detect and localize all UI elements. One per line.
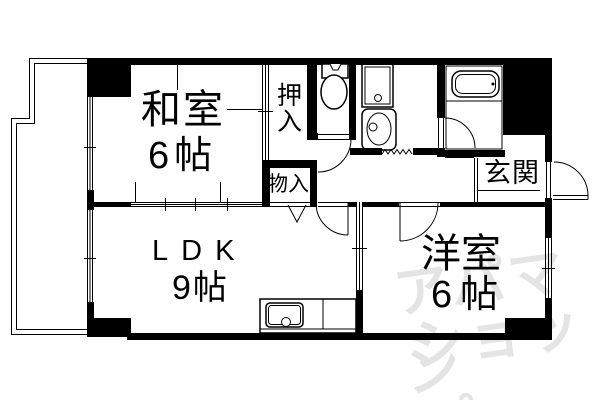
washing-machine-icon bbox=[362, 64, 393, 107]
kitchen-sink-icon bbox=[260, 299, 356, 333]
bathroom-door-arc bbox=[445, 118, 475, 148]
room-label-yoshitsu: 洋室 bbox=[421, 234, 501, 274]
monoire-folding-door-icon bbox=[288, 205, 306, 222]
entrance-door-arc bbox=[553, 162, 588, 200]
room-label-oshiire: 押入 bbox=[277, 83, 303, 135]
room-size-ldk: 9帖 bbox=[172, 271, 229, 305]
tatami-joint-lines bbox=[136, 65, 263, 202]
window-washitsu-west bbox=[84, 97, 96, 190]
floor-plan: アパマン ショップ bbox=[0, 0, 600, 400]
room-label-genkan: 玄関 bbox=[484, 160, 540, 187]
accordion-curtain-hatch bbox=[382, 148, 413, 155]
balcony-outline bbox=[12, 59, 88, 335]
sliding-door-washitsu-ldk bbox=[131, 198, 262, 211]
room-size-washitsu: 6帖 bbox=[148, 137, 217, 175]
room-size-yoshitsu: 6帖 bbox=[431, 276, 506, 314]
sliding-door-ldk-yoshitsu bbox=[352, 202, 367, 290]
sliding-door-washitsu-oshiire bbox=[258, 65, 273, 160]
washbasin-icon bbox=[362, 109, 396, 150]
window-yoshitsu-east bbox=[542, 238, 555, 298]
floor-plan-linework bbox=[0, 0, 600, 400]
toilet-icon bbox=[321, 64, 348, 109]
room-label-washitsu: 和室 bbox=[141, 90, 225, 130]
toilet-door-arc bbox=[318, 139, 351, 172]
room-label-ldk: LDK bbox=[152, 237, 247, 266]
window-ldk-west bbox=[84, 210, 96, 302]
hall-to-ldk-door-arc bbox=[316, 203, 348, 235]
room-label-monoire: 物入 bbox=[267, 174, 309, 195]
bathtub-icon bbox=[446, 66, 502, 149]
